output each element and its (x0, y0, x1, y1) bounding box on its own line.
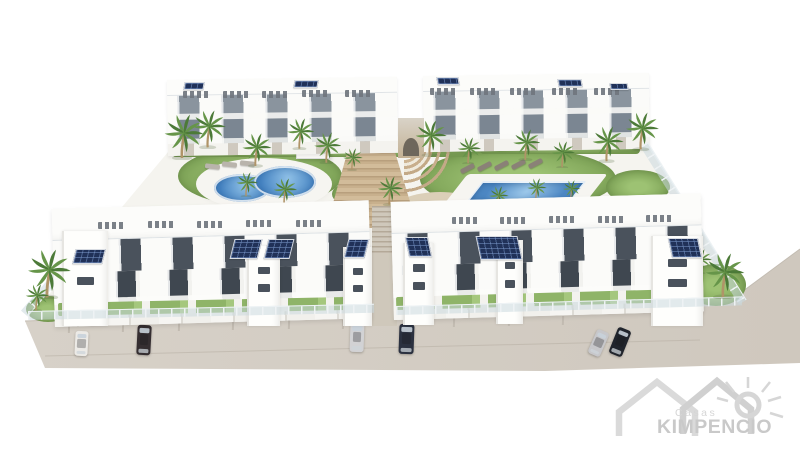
solar-panel-array (436, 77, 459, 85)
solar-panel-array (293, 80, 318, 88)
parking-line (232, 321, 234, 330)
solar-panel-array (557, 79, 582, 87)
rooftop-furniture (430, 88, 456, 95)
rooftop-furniture (470, 88, 496, 95)
palm-tree (701, 253, 745, 304)
palm-tree (622, 112, 659, 156)
watermark-logo: Casas KIMPENCIO (613, 369, 793, 447)
parked-car (74, 331, 88, 357)
palm-tree (23, 284, 49, 317)
rooftop-furniture (148, 221, 174, 228)
rooftop-furniture (197, 221, 223, 228)
palm-tree (412, 120, 447, 162)
palm-tree (510, 129, 541, 166)
rooftop-furniture (183, 91, 209, 98)
rooftop-furniture (452, 217, 478, 224)
palm-tree (311, 132, 342, 169)
solar-panel-array (264, 239, 295, 259)
rooftop-furniture (296, 220, 322, 227)
rooftop-furniture (246, 220, 272, 227)
palm-tree (589, 126, 624, 168)
rooftop-furniture (552, 88, 578, 95)
solar-panel-array (609, 83, 628, 90)
parking-line (562, 316, 564, 325)
rooftop-furniture (98, 222, 124, 229)
solar-panel-array (72, 249, 106, 264)
parked-car (349, 323, 364, 352)
solar-panel-array (405, 237, 432, 257)
rooftop-furniture (646, 215, 672, 222)
rooftop-furniture (302, 90, 328, 97)
rooftop-furniture (598, 216, 624, 223)
solar-panel-array (668, 238, 702, 258)
solar-panel-array (183, 82, 204, 90)
palm-tree (234, 172, 258, 202)
brand-name-bottom: KIMPENCIO (657, 416, 772, 438)
palm-tree (455, 137, 481, 170)
rooftop-furniture (345, 90, 371, 97)
parked-car (136, 325, 152, 356)
palm-tree (549, 141, 575, 174)
solar-panel-array (475, 236, 522, 260)
rooftop-furniture (262, 91, 288, 98)
aerial-render-scene: Casas KIMPENCIO (0, 0, 800, 450)
rooftop-furniture (510, 88, 536, 95)
rooftop-furniture (500, 217, 526, 224)
palm-tree (189, 110, 226, 154)
parked-car (398, 324, 414, 355)
parking-line (288, 320, 290, 329)
rooftop-furniture (223, 91, 249, 98)
palm-tree (341, 148, 363, 176)
stair-tower (343, 247, 372, 326)
solar-panel-array (230, 239, 263, 259)
rooftop-furniture (549, 216, 575, 223)
palm-tree (239, 133, 272, 173)
parking-line (453, 318, 455, 327)
